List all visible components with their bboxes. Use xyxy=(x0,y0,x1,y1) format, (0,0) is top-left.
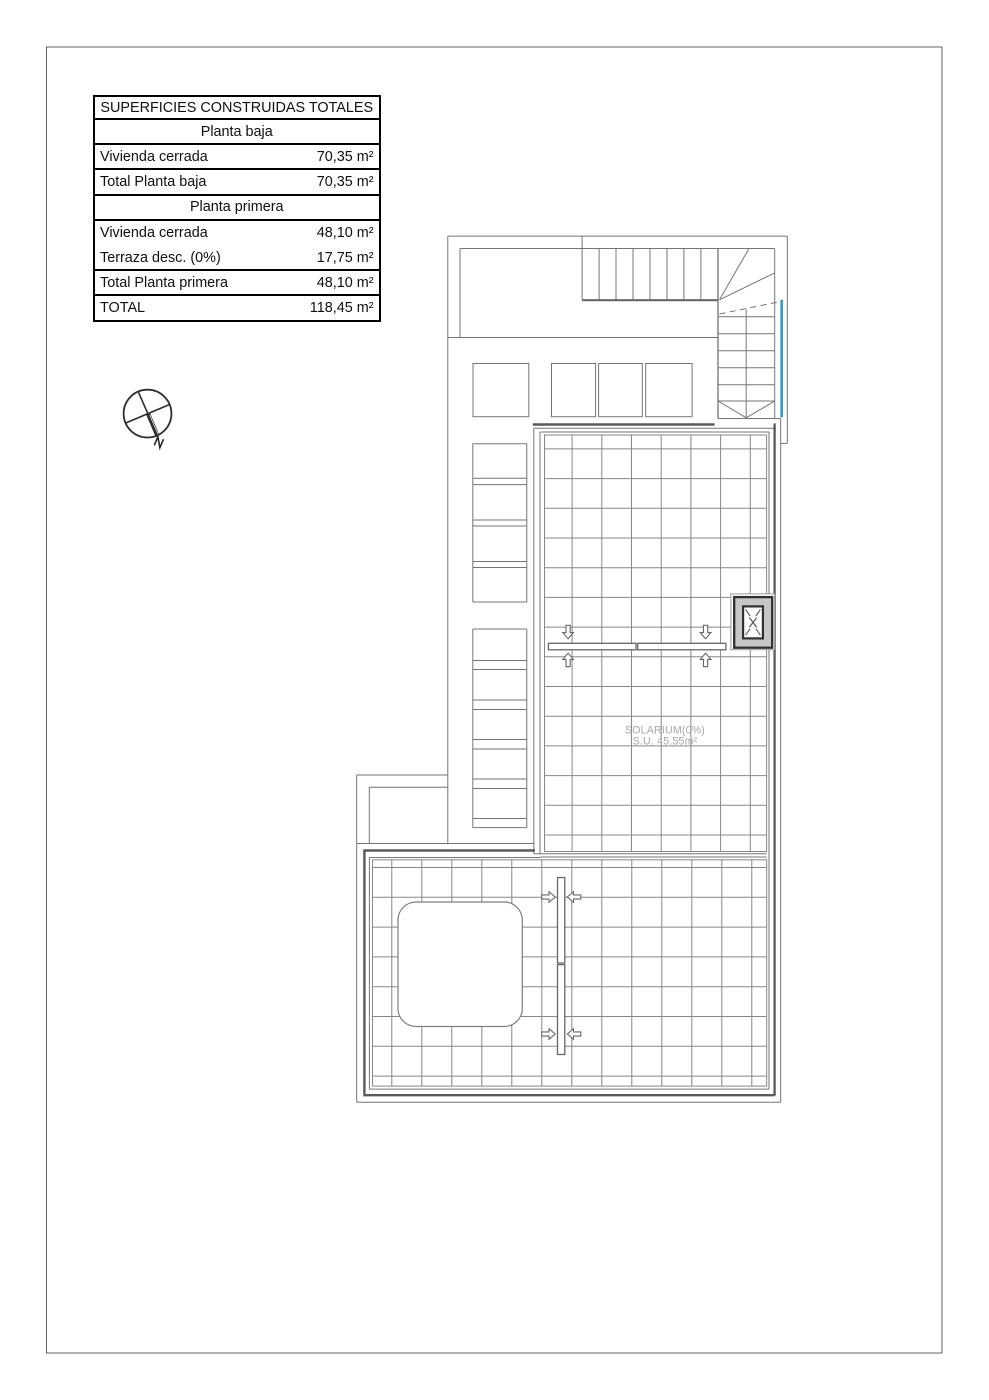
svg-text:S.U. 45.55m²: S.U. 45.55m² xyxy=(633,736,698,748)
